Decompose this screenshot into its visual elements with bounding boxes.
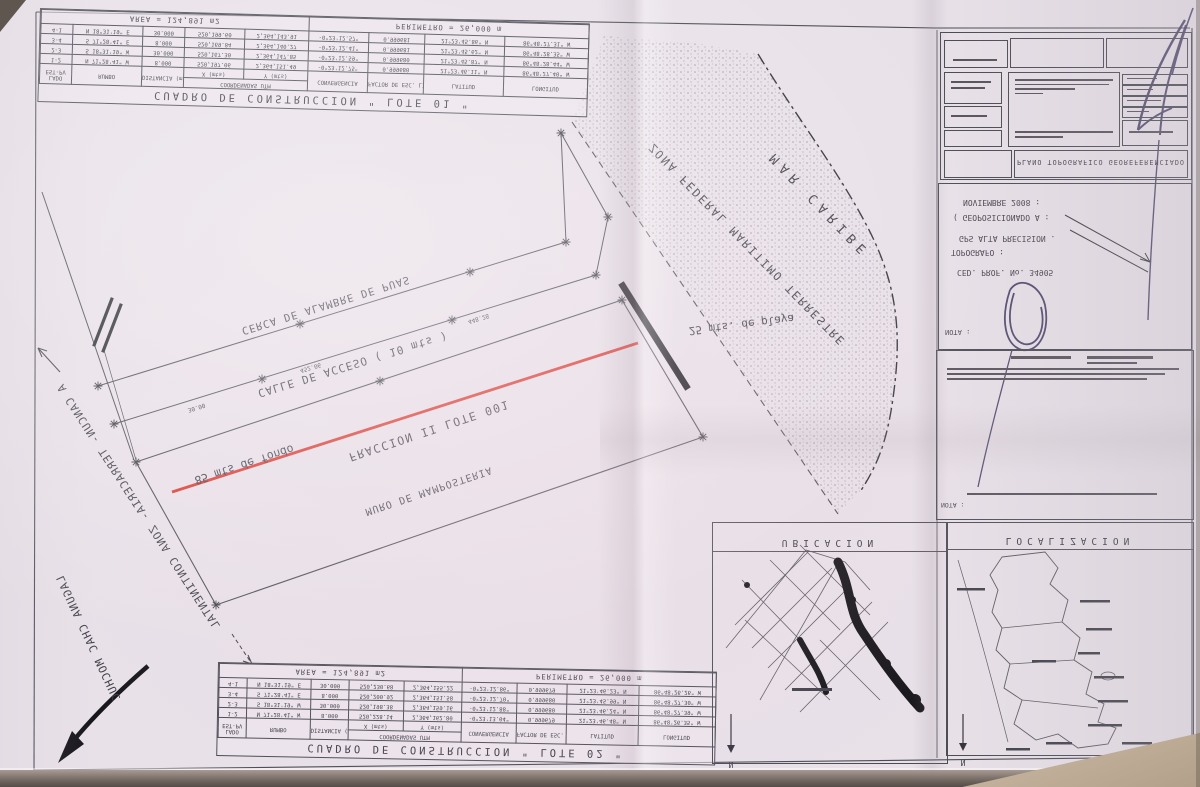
- cell-lado: 4-1: [41, 24, 73, 35]
- title-block-cell: [1122, 85, 1188, 96]
- cell-x: 520,230.68: [349, 680, 404, 691]
- cell-factor: 0.999680: [368, 63, 424, 75]
- cell-dist: 30.000: [311, 679, 349, 690]
- cell-factor: 0.999680: [368, 53, 424, 65]
- cell-conv: -0°23'12.88": [462, 702, 517, 713]
- road-and-fence-lines: [42, 133, 608, 460]
- cell-y: 2,364,140.27: [244, 39, 308, 51]
- note-line: TOPOGRAFO :: [951, 248, 1004, 257]
- note-line: NOVIEMBRE 2008 :: [963, 198, 1040, 207]
- title-block-cell: [944, 72, 1002, 104]
- cell-x: 520,228.14: [348, 710, 403, 721]
- vertex-markers: [94, 129, 708, 610]
- cell-conv: -0°23'13.04": [461, 712, 516, 723]
- localizacion-inset-box: LOCALIZACION: [946, 522, 1194, 756]
- title-block-cell: [1122, 96, 1188, 107]
- cell-y: 2,364,151.58: [404, 691, 462, 702]
- ubicacion-title: UBICACION: [713, 537, 947, 548]
- title-block-cell: [944, 130, 1002, 147]
- cell-lon: 86°48'26.26" W: [639, 686, 716, 697]
- cell-lado: 1-2: [40, 53, 72, 64]
- fondo-red-label: 85 mts de fondo: [193, 442, 296, 488]
- title-block-cell: [1106, 38, 1188, 68]
- cell-dist: 8.000: [142, 56, 184, 67]
- certification-box: NOTA :: [936, 350, 1194, 520]
- ubicacion-inset-box: UBICACION: [712, 522, 948, 764]
- lot-parcel: [136, 283, 703, 605]
- cell-dist: 8.000: [311, 689, 349, 700]
- cell-x: 520,197.06: [184, 57, 244, 69]
- cell-x: 520,198.38: [349, 700, 404, 711]
- cell-rumbo: S 18°31'19" W: [72, 44, 142, 56]
- beach-zone: [572, 36, 897, 514]
- note-line: CED. PROF. No. 34905: [957, 268, 1053, 277]
- cell-y: 2,364,155.22: [404, 681, 462, 692]
- cancun-label: A CANCUN- TERRACERIA- ZONA CONTINENTAL: [55, 382, 224, 632]
- cell-x: 520,169.84: [184, 38, 244, 50]
- notes-box: NOVIEMBRE 2008 : ( GEOPOSICIONADO A : GP…: [938, 183, 1192, 350]
- cell-conv: -0°23'12.41": [308, 41, 368, 53]
- cell-lado: 2-3: [219, 697, 247, 708]
- plano-title-cell: PLANO TOPOGRAFICO GEOREFERENCIADO: [1014, 150, 1188, 178]
- cell-x: 520,167.30: [184, 48, 244, 60]
- cell-lon: 86°48'26.35" W: [638, 716, 715, 727]
- cell-conv: -0°23'12.86": [462, 682, 517, 693]
- cell-factor: 0.999679: [517, 683, 567, 694]
- cell-lado: 1-2: [218, 707, 246, 718]
- cell-dist: 30.000: [311, 699, 349, 710]
- plano-title: PLANO TOPOGRAFICO GEOREFERENCIADO: [1015, 158, 1187, 166]
- cell-rumbo: S 18°31'19" W: [247, 698, 311, 709]
- cell-rumbo: N 18°31'19" E: [73, 24, 143, 36]
- cell-rumbo: S 71°28'41" E: [247, 688, 311, 699]
- cell-x: 520,200.92: [349, 690, 404, 701]
- cell-lado: 3-4: [41, 34, 73, 45]
- cell-lat: 21°23'45.99" N: [567, 694, 639, 705]
- cell-rumbo: N 71°28'41" W: [72, 54, 142, 66]
- svg-text:N: N: [961, 758, 966, 767]
- photographed-survey-plan: MAR CARIBE ZONA FEDERAL MARITIMO TERREST…: [0, 0, 1200, 787]
- cell-lat: 21°23'46.24" N: [567, 704, 639, 715]
- title-block-cell: [944, 150, 1012, 178]
- cell-x: 520,199.60: [185, 28, 245, 40]
- title-block-cell: [944, 40, 1008, 68]
- cell-factor: 0.999680: [517, 703, 567, 714]
- cell-y: 2,364,159.16: [404, 701, 462, 712]
- cell-lat: 21°23'46.23" N: [567, 684, 639, 695]
- fraccion-label: FRACCION II LOTE 001: [347, 397, 511, 464]
- cell-factor: 0.999681: [368, 43, 424, 55]
- title-block-cell: [944, 106, 1002, 128]
- cell-dist: 30.000: [142, 46, 184, 57]
- title-block-cell: [1122, 107, 1188, 118]
- cell-rumbo: S 71°28'41" E: [72, 34, 142, 46]
- cell-y: 2,364,151.49: [244, 59, 308, 71]
- cell-y: 2,364,147.85: [244, 49, 308, 61]
- cell-rumbo: N 71°28'41" W: [246, 708, 310, 719]
- cell-lado: 2-3: [40, 43, 72, 54]
- title-block-cell: [1122, 120, 1188, 146]
- construction-table-lote02: CUADRO DE CONSTRUCCION " LOTE 02 " LADOE…: [216, 662, 717, 765]
- cell-rumbo: N 18°31'19" E: [247, 678, 311, 689]
- cell-conv: -0°23'12.59": [308, 51, 368, 63]
- note-line: ( GEOPOSICIONADO A :: [953, 213, 1049, 222]
- cell-factor: 0.999679: [516, 713, 566, 724]
- localizacion-title: LOCALIZACION: [947, 535, 1193, 546]
- cell-dist: 30.000: [143, 26, 185, 37]
- vertex-coordinate-labels: [92, 297, 123, 353]
- laguna-label: LAGUNA CHAC MOCHUC: [54, 574, 124, 704]
- construction-table-lote01: CUADRO DE CONSTRUCCION " LOTE 01 " LADOE…: [37, 8, 589, 117]
- masonry-wall-bar: [621, 283, 688, 389]
- muro-label: MURO DE MAMPOSTERIA: [364, 464, 494, 517]
- cell-lado: 4-1: [219, 678, 247, 689]
- nota-label-2: NOTA :: [941, 501, 964, 509]
- title-block-description-cell: [1008, 72, 1120, 147]
- cell-lado: 3-4: [219, 688, 247, 699]
- cell-lon: 86°48'27.39" W: [639, 706, 716, 717]
- cell-conv: -0°23'12.70": [462, 692, 517, 703]
- cell-factor: 0.999680: [517, 693, 567, 704]
- cell-dist: 8.000: [310, 709, 348, 720]
- cell-lat: 21°23'46.48" N: [566, 714, 638, 725]
- cell-lon: 86°48'27.30" W: [639, 696, 716, 707]
- cell-y: 2,364,162.80: [403, 711, 461, 722]
- cell-factor: 0.999681: [369, 33, 425, 45]
- nota-label: NOTA :: [945, 328, 970, 336]
- note-line: GPS ALTA PRECISION .: [959, 234, 1055, 243]
- cell-conv: -0°23'12.75": [308, 61, 368, 73]
- cerca-label: CERCA DE ALAMBRE DE PUAS: [240, 273, 411, 336]
- cell-conv: -0°23'12.57": [309, 31, 369, 43]
- cell-y: 2,364,143.91: [245, 29, 309, 41]
- dim-label-3: 30.00: [187, 401, 207, 413]
- title-block-cell: [1010, 38, 1104, 68]
- cell-dist: 8.000: [142, 36, 184, 47]
- title-block-cell: [1122, 74, 1188, 85]
- beach-stipple: [572, 36, 897, 514]
